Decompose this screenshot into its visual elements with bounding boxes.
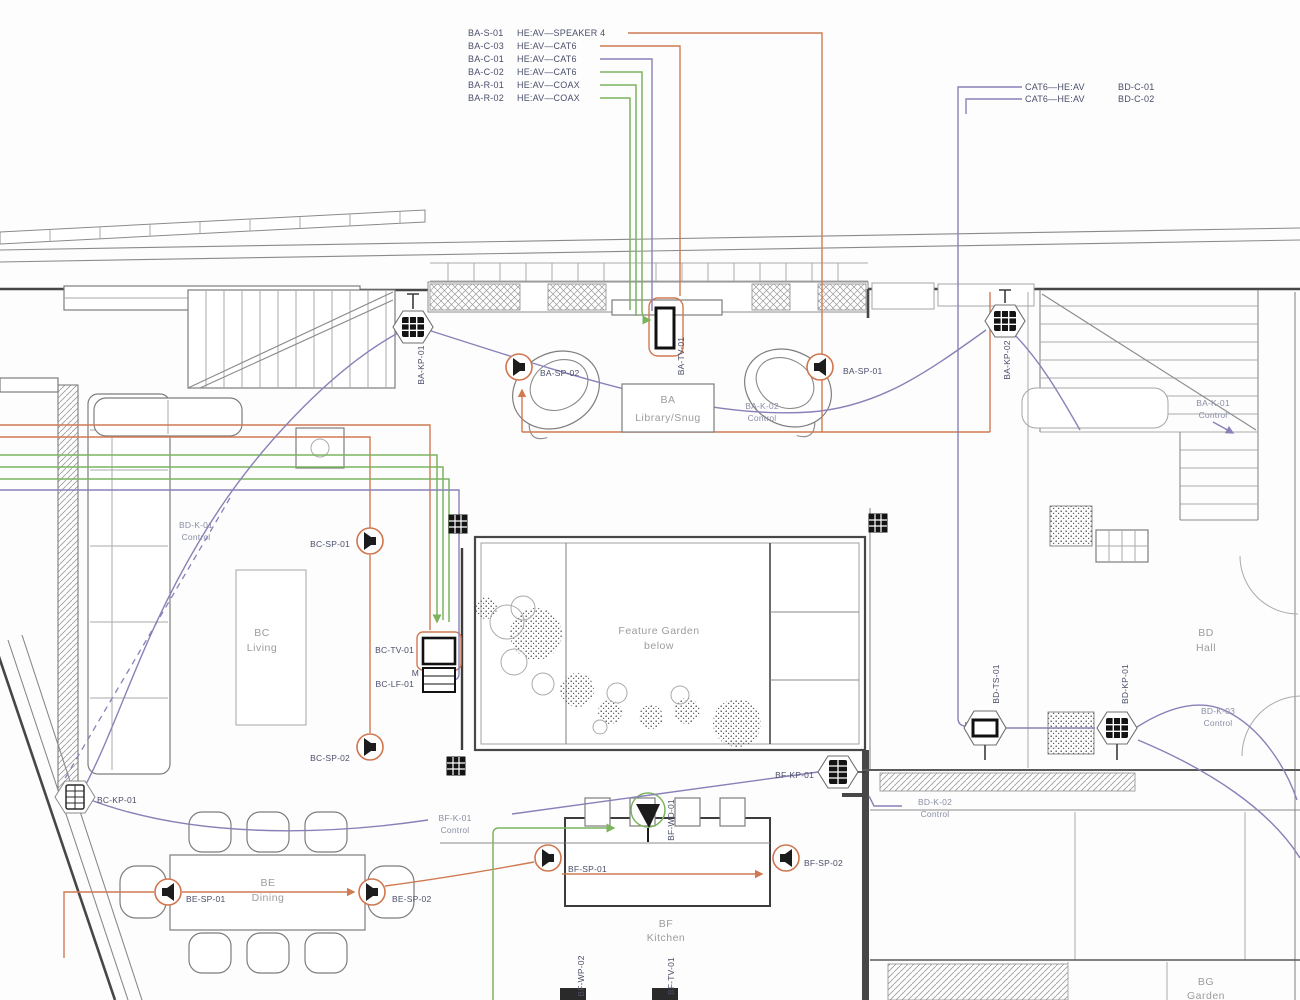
room-label-bg-code: BG (1198, 976, 1214, 988)
tv-icon-bc-tv-01 (423, 638, 455, 664)
label-ba-k-01: BA-K-01 (1196, 398, 1230, 408)
floorplan-page: BA Library/Snug BC Living BD Hall BE Din… (0, 0, 1300, 1000)
legend-tag: BA-R-02 (468, 93, 504, 103)
label-bc-lf-01-prefix: M (412, 668, 419, 678)
label-bd-k-01-sub: Control (182, 532, 211, 542)
label-bf-k-01: BF-K-01 (438, 813, 471, 823)
legend-cable: HE:AV—SPEAKER 4 (517, 28, 605, 38)
legend-tag: BA-C-01 (468, 54, 504, 64)
keypad-icon-ba-kp-01 (393, 311, 433, 343)
legend-cable: HE:AV—CAT6 (517, 41, 577, 51)
room-label-ba-name: Library/Snug (635, 412, 701, 424)
room-label-ba-code: BA (660, 394, 675, 406)
floor-box-icon (869, 514, 887, 532)
room-label-bd-code: BD (1198, 627, 1214, 639)
shelf-icon-bc-lf-01 (423, 668, 455, 692)
room-label-bg-name: Garden (1187, 990, 1225, 1000)
room-label-bc-name: Living (247, 642, 277, 654)
cable-legend-right: CAT6—HE:AV BD-C-01 CAT6—HE:AV BD-C-02 (1025, 82, 1154, 104)
speaker-icon-bf-sp-01 (535, 845, 561, 871)
label-ba-k-01-sub: Control (1199, 410, 1228, 420)
room-label-be-code: BE (260, 877, 275, 889)
legend-cable: HE:AV—CAT6 (517, 67, 577, 77)
label-be-sp-01: BE-SP-01 (186, 894, 225, 904)
label-bd-k-01: BD-K-01 (179, 520, 213, 530)
label-bc-sp-01: BC-SP-01 (310, 539, 350, 549)
building-structure (0, 210, 1300, 1000)
label-bd-kp-01: BD-KP-01 (1120, 664, 1130, 704)
floor-box-icon (449, 515, 467, 533)
label-bd-k-03: BD-K-03 (1201, 706, 1235, 716)
room-label-feature-garden-2: below (644, 640, 674, 652)
label-bd-k-03-sub: Control (1204, 718, 1233, 728)
speaker-icon-bf-sp-02 (773, 845, 799, 871)
label-bf-wp-02: BF-WP-02 (576, 955, 586, 996)
room-label-bc-code: BC (254, 627, 270, 639)
tv-icon-ba-tv-01 (656, 308, 674, 348)
label-ba-tv-01: BA-TV-01 (676, 337, 686, 376)
speaker-icon-be-sp-02 (359, 879, 385, 905)
speaker-icon-bc-sp-02 (357, 734, 383, 760)
label-bf-tv-01: BF-TV-01 (666, 957, 676, 995)
label-bc-tv-01: BC-TV-01 (375, 645, 414, 655)
label-bd-k-02-sub: Control (921, 809, 950, 819)
speaker-icon-ba-sp-01 (807, 354, 833, 380)
floorplan-drawing: BA Library/Snug BC Living BD Hall BE Din… (0, 0, 1300, 1000)
label-bc-sp-02: BC-SP-02 (310, 753, 350, 763)
label-ba-sp-02: BA-SP-02 (540, 368, 579, 378)
touchscreen-icon-bd-ts-01 (964, 711, 1006, 745)
label-bf-sp-01: BF-SP-01 (568, 864, 607, 874)
label-bd-k-02: BD-K-02 (918, 797, 952, 807)
legend-tag: BD-C-01 (1118, 82, 1154, 92)
label-bd-ts-01: BD-TS-01 (991, 664, 1001, 703)
legend-cable: CAT6—HE:AV (1025, 94, 1085, 104)
legend-tag: BA-C-02 (468, 67, 504, 77)
label-bf-kp-01: BF-KP-01 (775, 770, 814, 780)
cable-legend-left: BA-S-01 HE:AV—SPEAKER 4 BA-C-03 HE:AV—CA… (468, 28, 605, 103)
keypad-icon-bd-kp-01 (1097, 712, 1137, 744)
legend-cable: HE:AV—CAT6 (517, 54, 577, 64)
label-ba-sp-01: BA-SP-01 (843, 366, 882, 376)
label-ba-kp-02: BA-KP-02 (1002, 340, 1012, 379)
legend-tag: BD-C-02 (1118, 94, 1154, 104)
label-bc-kp-01: BC-KP-01 (97, 795, 137, 805)
label-ba-k-02: BA-K-02 (745, 401, 779, 411)
room-label-bd-name: Hall (1196, 642, 1216, 654)
room-label-bf-code: BF (659, 918, 673, 930)
label-ba-k-02-sub: Control (748, 413, 777, 423)
floor-box-icon (447, 757, 465, 775)
label-bf-k-01-sub: Control (441, 825, 470, 835)
legend-tag: BA-R-01 (468, 80, 504, 90)
legend-cable: HE:AV—COAX (517, 80, 580, 90)
legend-cable: HE:AV—COAX (517, 93, 580, 103)
keypad-icon-bf-kp-01 (818, 756, 858, 788)
room-label-feature-garden: Feature Garden (618, 625, 699, 637)
label-ba-kp-01: BA-KP-01 (416, 345, 426, 384)
room-label-be-name: Dining (252, 892, 285, 904)
label-be-sp-02: BE-SP-02 (392, 894, 431, 904)
room-label-bf-name: Kitchen (647, 932, 686, 944)
legend-cable: CAT6—HE:AV (1025, 82, 1085, 92)
legend-tag: BA-S-01 (468, 28, 503, 38)
speaker-icon-be-sp-01 (155, 879, 181, 905)
keypad-icon-ba-kp-02 (985, 305, 1025, 337)
label-bf-wd-01: BF-WD-01 (666, 799, 676, 841)
label-bc-lf-01: BC-LF-01 (376, 679, 415, 689)
label-bf-sp-02: BF-SP-02 (804, 858, 843, 868)
speaker-icon-ba-sp-02 (506, 354, 532, 380)
legend-tag: BA-C-03 (468, 41, 504, 51)
speaker-icon-bc-sp-01 (357, 528, 383, 554)
